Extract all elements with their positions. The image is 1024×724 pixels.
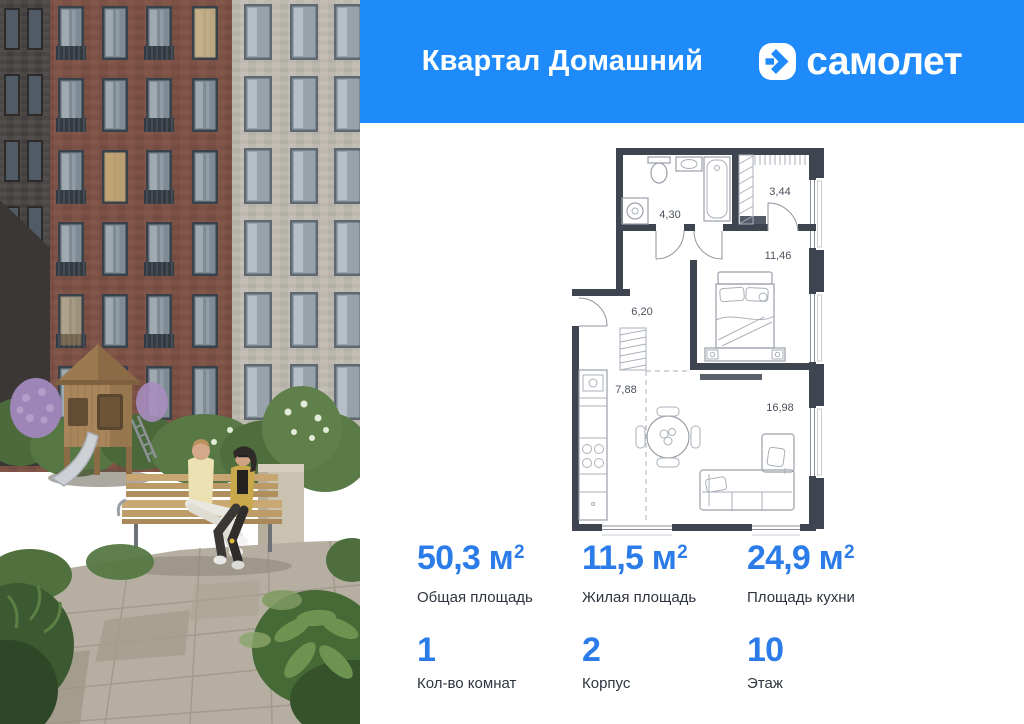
room-area-hallway: 6,20 xyxy=(631,306,652,318)
stat-kitchen-area: 24,9 м2 Площадь кухни xyxy=(747,541,912,606)
courtyard-photo xyxy=(0,0,360,724)
stat-kitchen-area-value: 24,9 м2 xyxy=(747,541,912,581)
kitchen-fixtures xyxy=(579,370,607,520)
stat-floor-label: Этаж xyxy=(747,675,912,692)
floor-plan: 4,30 3,44 11,46 6,20 7,88 16,98 xyxy=(572,148,824,540)
stat-kitchen-area-label: Площадь кухни xyxy=(747,589,912,606)
stat-floor-value: 10 xyxy=(747,633,912,667)
stat-building-value: 2 xyxy=(582,633,747,667)
apartment-stats: 50,3 м2 Общая площадь 11,5 м2 Жилая площ… xyxy=(417,541,912,692)
stat-total-area-label: Общая площадь xyxy=(417,589,582,606)
room-area-dressing: 3,44 xyxy=(769,186,790,198)
stat-total-area-value: 50,3 м2 xyxy=(417,541,582,581)
project-title: Квартал Домашний xyxy=(422,45,704,78)
room-area-kitchen: 7,88 xyxy=(615,384,636,396)
stat-total-area: 50,3 м2 Общая площадь xyxy=(417,541,582,606)
stat-rooms-count-label: Кол-во комнат xyxy=(417,675,582,692)
stat-rooms-count-value: 1 xyxy=(417,633,582,667)
stat-rooms-count: 1 Кол-во комнат xyxy=(417,633,582,692)
room-area-living: 16,98 xyxy=(766,402,794,414)
stat-floor: 10 Этаж xyxy=(747,633,912,692)
lilac-bush xyxy=(10,378,62,438)
floor-plan-drawing: 4,30 3,44 11,46 6,20 7,88 16,98 xyxy=(572,148,824,540)
brand-name: самолет xyxy=(806,42,962,81)
stat-building: 2 Корпус xyxy=(582,633,747,692)
stats-row-areas: 50,3 м2 Общая площадь 11,5 м2 Жилая площ… xyxy=(417,541,912,606)
samolet-logo: самолет xyxy=(759,42,962,81)
stat-living-area: 11,5 м2 Жилая площадь xyxy=(582,541,747,606)
stat-living-area-value: 11,5 м2 xyxy=(582,541,747,581)
stats-row-details: 1 Кол-во комнат 2 Корпус 10 Этаж xyxy=(417,633,912,692)
courtyard-photo-art xyxy=(0,0,360,724)
room-area-bathroom: 4,30 xyxy=(659,209,680,221)
stat-living-area-label: Жилая площадь xyxy=(582,589,747,606)
room-area-bedroom: 11,46 xyxy=(765,250,792,262)
bedroom-furniture xyxy=(705,272,785,361)
hall-closet xyxy=(620,328,646,370)
stat-building-label: Корпус xyxy=(582,675,747,692)
header: Квартал Домашний самолет xyxy=(360,0,1024,123)
samolet-chevron-icon xyxy=(759,43,796,80)
living-furniture xyxy=(636,374,794,510)
listing-card: Квартал Домашний самолет xyxy=(0,0,1024,724)
